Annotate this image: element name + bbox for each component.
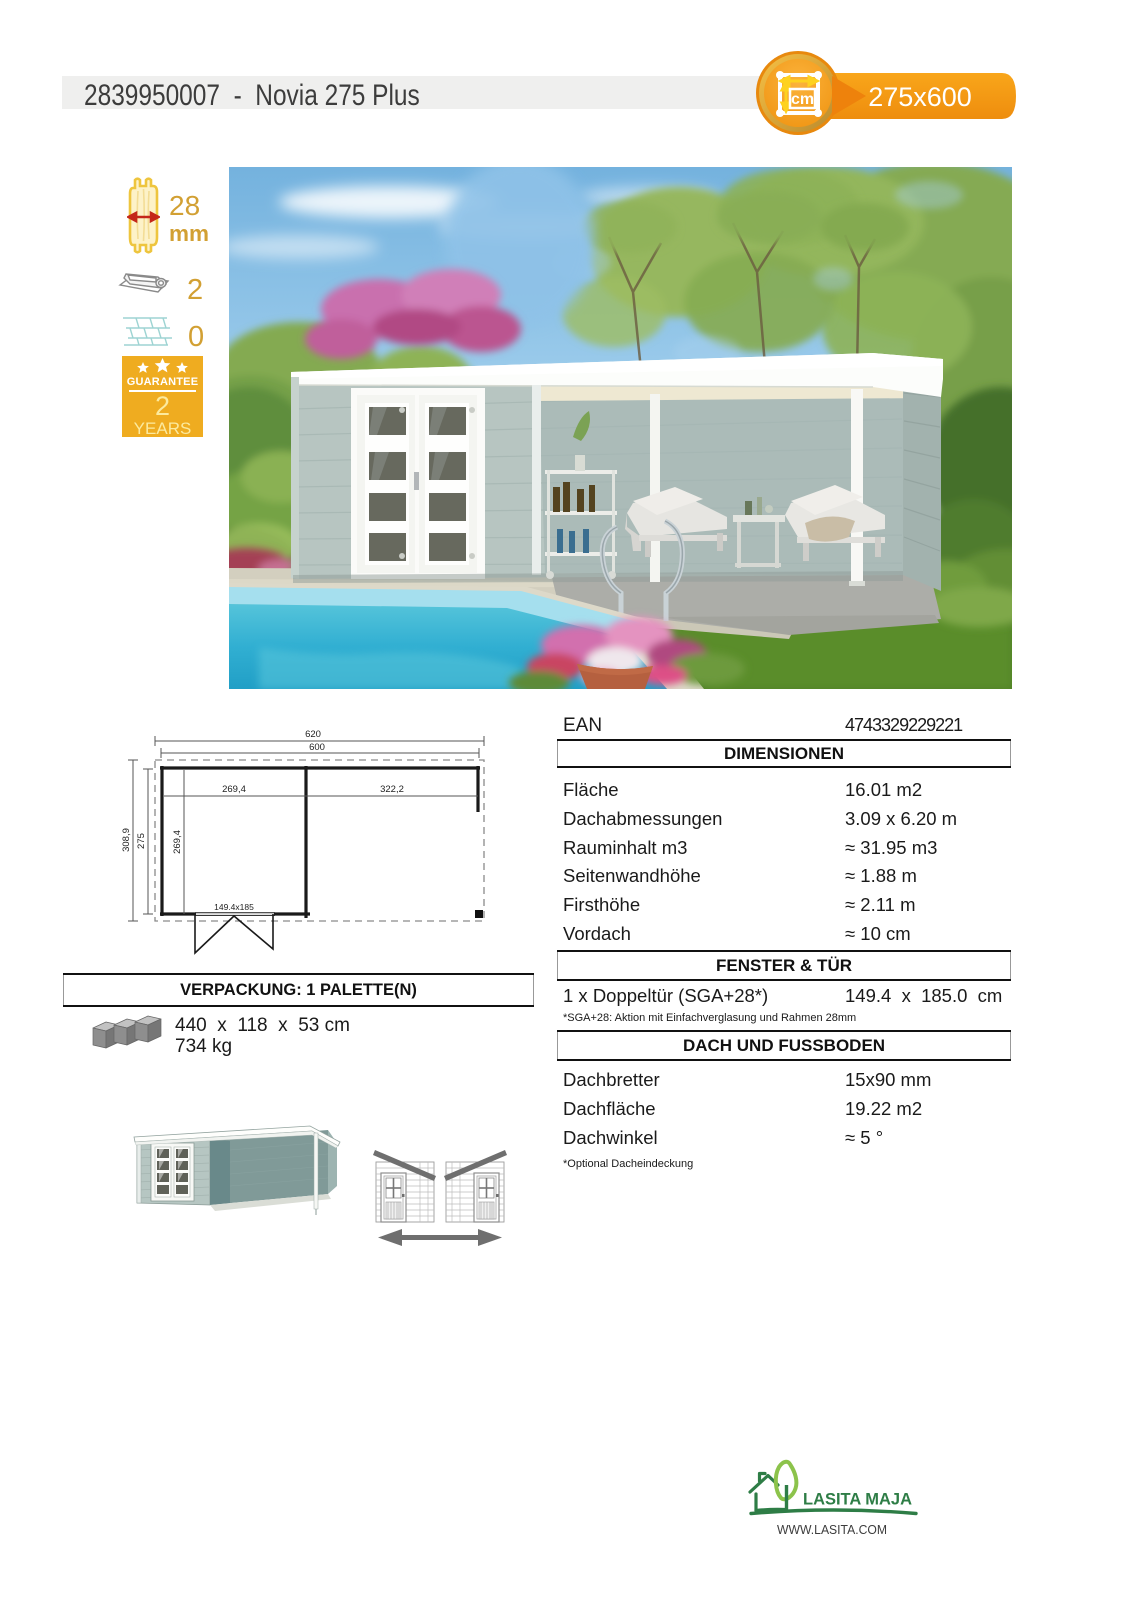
svg-text:600: 600 bbox=[309, 742, 325, 753]
svg-text:149.4x185: 149.4x185 bbox=[214, 902, 254, 912]
svg-text:WWW.LASITA.COM: WWW.LASITA.COM bbox=[777, 1523, 887, 1537]
svg-text:269,4: 269,4 bbox=[222, 784, 246, 795]
svg-text:LASITA MAJA: LASITA MAJA bbox=[803, 1491, 912, 1509]
svg-text:308,9: 308,9 bbox=[121, 828, 132, 852]
svg-text:275x600: 275x600 bbox=[868, 82, 972, 112]
svg-text:275: 275 bbox=[136, 833, 147, 849]
svg-text:322,2: 322,2 bbox=[380, 784, 404, 795]
svg-text:620: 620 bbox=[305, 729, 321, 740]
svg-text:269,4: 269,4 bbox=[172, 830, 183, 854]
svg-text:cm: cm bbox=[791, 91, 814, 108]
